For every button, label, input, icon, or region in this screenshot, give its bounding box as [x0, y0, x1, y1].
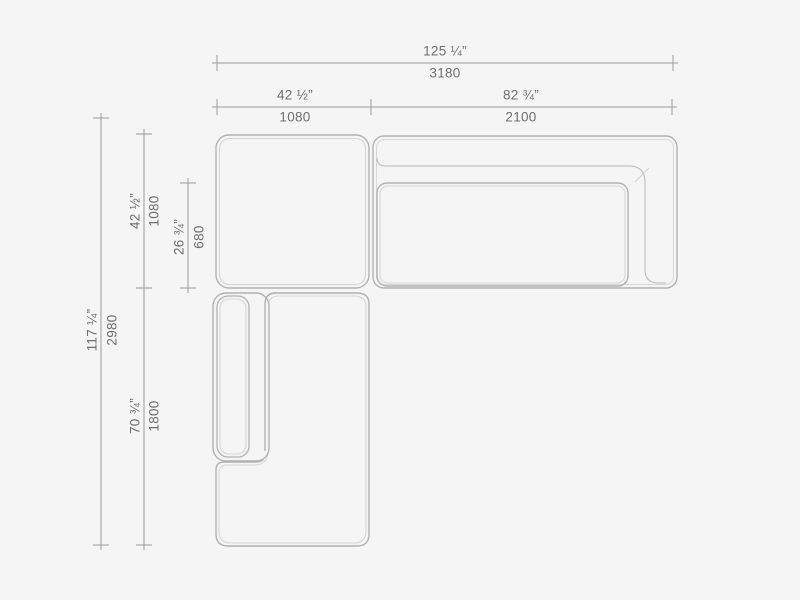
dimension-lines: [93, 55, 678, 550]
corner-miter-seam: [635, 168, 649, 182]
ottoman-inner-line: [220, 139, 366, 285]
sofa-body-outline: [373, 136, 677, 288]
label-overall-width-metric: 3180: [429, 66, 460, 80]
label-chaise-length-imperial: 70 ¾”: [128, 398, 142, 434]
sofa-dimension-drawing: 125 ¼” 3180 42 ½” 1080 82 ¾” 2100 117 ¼”…: [0, 0, 800, 600]
chaise-armrest-shell: [213, 293, 269, 461]
chaise-module: [213, 293, 369, 546]
label-overall-depth-imperial: 117 ¼”: [85, 309, 99, 352]
label-right-width-metric: 2100: [505, 110, 536, 124]
label-seat-depth-imperial: 26 ¾”: [172, 219, 186, 255]
label-left-width-metric: 1080: [279, 110, 310, 124]
sofa-module: [373, 136, 677, 288]
sofa-seat-cushion: [377, 183, 628, 286]
ottoman-module: [216, 135, 369, 288]
label-seat-depth-metric: 680: [192, 225, 206, 248]
label-top-depth-imperial: 42 ½”: [128, 193, 142, 229]
label-left-width-imperial: 42 ½”: [277, 88, 313, 102]
drawing-canvas: [0, 0, 800, 600]
label-overall-depth-metric: 2980: [105, 314, 119, 345]
sofa-body-inner-line: [377, 140, 674, 285]
sofa-seat-cushion-inner-line: [380, 186, 625, 283]
sofa-outline-group: [213, 135, 677, 546]
label-top-depth-metric: 1080: [147, 195, 161, 226]
label-chaise-length-metric: 1800: [147, 400, 161, 431]
backrest-armrest-seam: [377, 158, 666, 283]
ottoman-outline: [216, 135, 369, 288]
label-overall-width-imperial: 125 ¼”: [423, 44, 467, 58]
label-right-width-imperial: 82 ¾”: [503, 88, 539, 102]
